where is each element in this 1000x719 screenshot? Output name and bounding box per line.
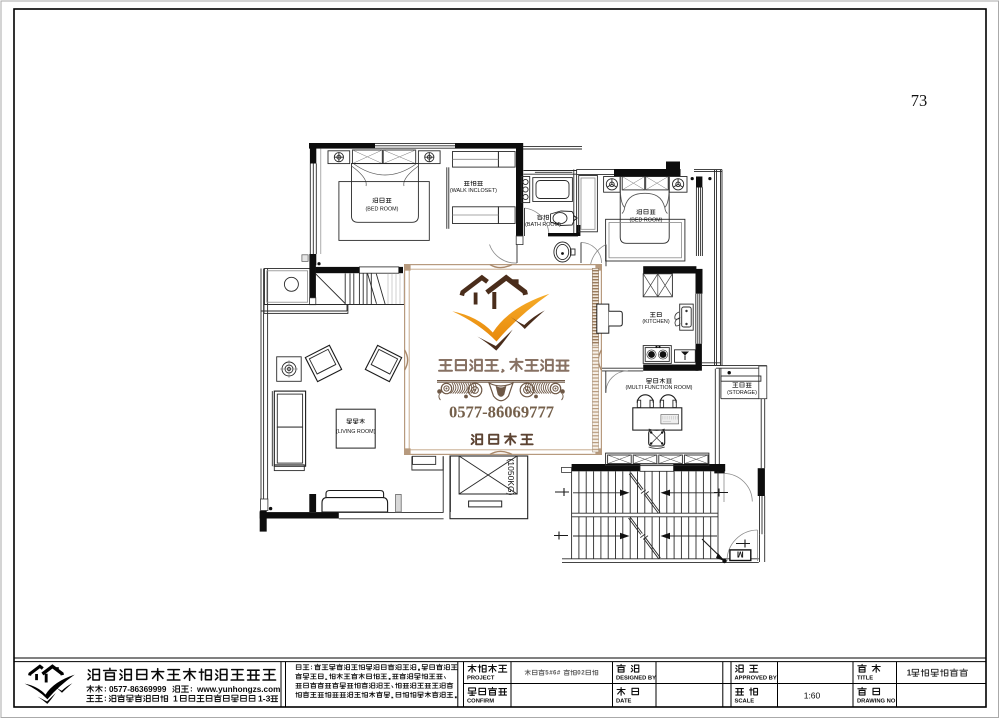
svg-text:(WALK INCLOSET): (WALK INCLOSET) [450,188,497,194]
svg-text:M: M [737,550,744,559]
svg-text:(MULTI FUNCTION ROOM): (MULTI FUNCTION ROOM) [626,385,693,391]
svg-text:(STORAGE): (STORAGE) [727,390,757,396]
svg-text:DRAWING NO: DRAWING NO [857,699,896,705]
svg-text:73: 73 [911,91,928,110]
svg-text:PROJECT: PROJECT [467,676,495,682]
svg-text:(1050KG): (1050KG) [506,459,516,496]
svg-text:APPROVED BY: APPROVED BY [735,676,777,682]
svg-text:0577-86369999: 0577-86369999 [109,685,167,694]
svg-text:DATE: DATE [616,699,631,705]
svg-text:(BED ROOM): (BED ROOM) [366,207,399,213]
svg-text:(LIVING ROOM): (LIVING ROOM) [336,429,376,435]
svg-text:0577-86069777: 0577-86069777 [449,403,554,422]
svg-text:(KITCHEN): (KITCHEN) [642,319,669,325]
svg-text:1: 1 [907,669,912,678]
svg-text:1-3: 1-3 [258,694,271,704]
svg-text:1: 1 [173,694,178,704]
svg-text:CONFIRM: CONFIRM [467,699,494,705]
svg-text:TITLE: TITLE [857,676,873,682]
svg-text:1:60: 1:60 [804,691,821,701]
svg-text:2: 2 [581,670,585,677]
svg-text:(BATH ROOM): (BATH ROOM) [525,222,561,228]
svg-text:(BED ROOM): (BED ROOM) [630,218,663,224]
svg-text:SCALE: SCALE [735,699,755,705]
svg-text:DESIGNED BY: DESIGNED BY [616,676,656,682]
